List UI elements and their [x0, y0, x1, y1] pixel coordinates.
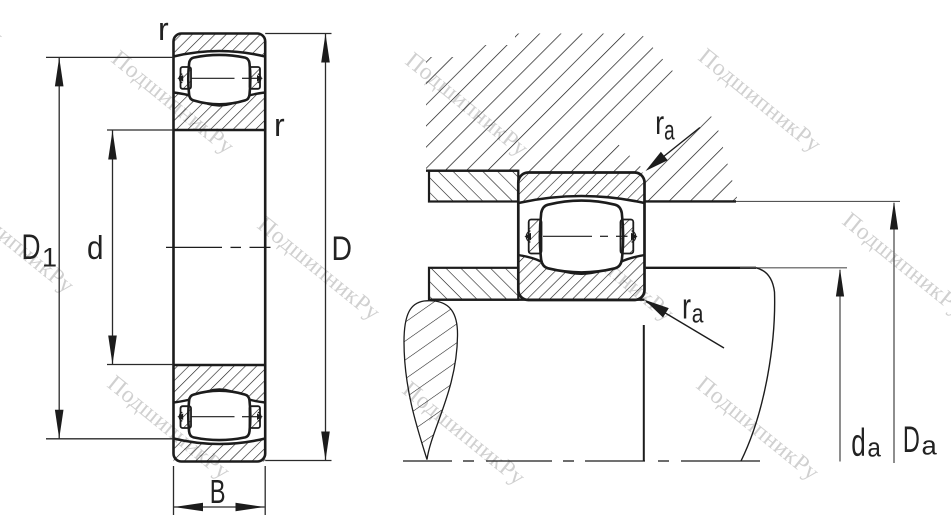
svg-text:B: B — [210, 473, 226, 510]
svg-text:a: a — [867, 435, 881, 463]
svg-text:r: r — [158, 11, 169, 47]
svg-text:D: D — [903, 419, 920, 460]
svg-text:r: r — [655, 104, 664, 141]
svg-text:ПодшипникРу: ПодшипникРу — [0, 0, 8, 50]
svg-text:d: d — [851, 422, 866, 465]
svg-text:a: a — [922, 432, 938, 460]
svg-text:r: r — [682, 286, 691, 327]
svg-text:d: d — [87, 229, 104, 266]
svg-text:r: r — [274, 107, 285, 143]
svg-text:D: D — [22, 228, 41, 267]
svg-text:a: a — [664, 115, 675, 146]
svg-text:D: D — [332, 230, 353, 268]
svg-text:ПодшипникРу: ПодшипникРу — [691, 371, 824, 486]
svg-text:ПодшипникРу: ПодшипникРу — [252, 211, 385, 326]
svg-text:a: a — [692, 299, 704, 329]
svg-text:1: 1 — [42, 243, 57, 273]
